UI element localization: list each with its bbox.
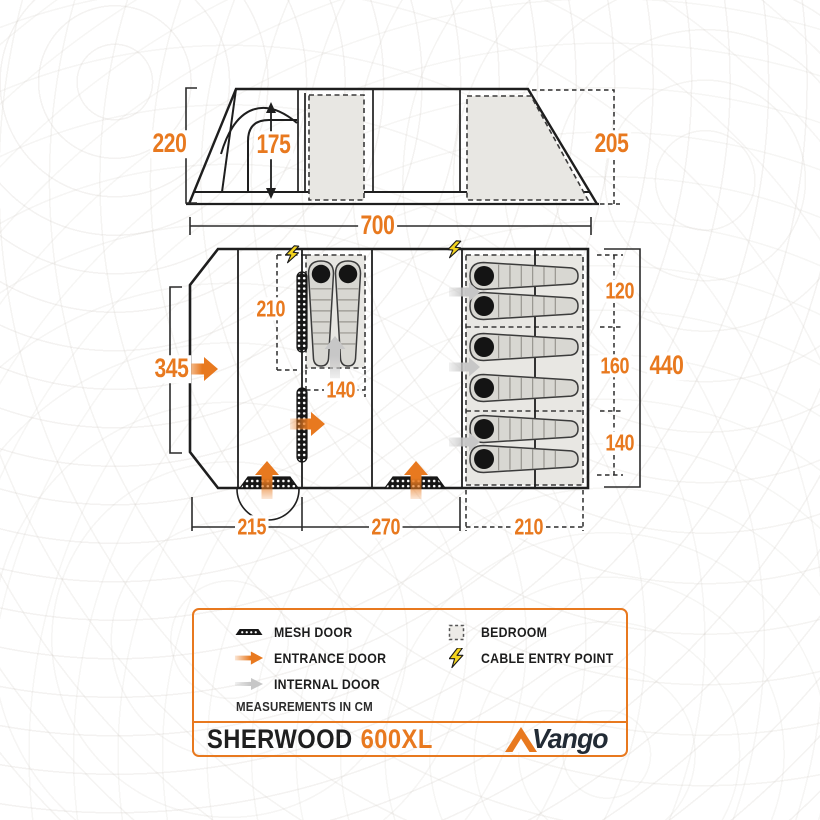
model-series: SHERWOOD [207, 724, 353, 754]
legend-label: ENTRANCE DOOR [274, 650, 386, 666]
mesh-door-icon [234, 626, 264, 638]
model-variant: 600XL [361, 724, 433, 754]
mesh-door-vertical-top [297, 272, 307, 352]
legend-label: BEDROOM [481, 624, 547, 640]
dim-right-total: 440 [647, 352, 686, 380]
legend-item-bedroom: BEDROOM [441, 619, 632, 645]
bottom-dim-lines [192, 497, 460, 531]
legend-item-entrance-door: ENTRANCE DOOR [234, 645, 402, 671]
dim-bottom-living: 270 [369, 515, 402, 538]
lightning-bolt-icon [447, 240, 461, 259]
legend-item-mesh-door: MESH DOOR [234, 619, 402, 645]
dim-right-top: 120 [603, 279, 636, 302]
dim-elev-right: 205 [592, 130, 631, 158]
dim-right-middle: 160 [598, 354, 631, 377]
legend-box: MESH DOOR ENTRANCE DOOR INTERNAL DOOR BE… [192, 608, 628, 757]
floorplan-view [183, 240, 588, 520]
dim-bottom-porch: 215 [235, 515, 268, 538]
internal-door-arrow-icon [234, 677, 264, 691]
bedroom-dashed-square-icon [441, 624, 471, 641]
elevation-bedroom-right [467, 96, 588, 200]
dim-front-width: 345 [152, 355, 191, 383]
entrance-door-arrow-icon [234, 650, 264, 666]
dim-bedroom-left-depth: 210 [254, 297, 287, 320]
dim-right-bottom: 140 [603, 431, 636, 454]
elevation-view [186, 89, 599, 204]
dim-elev-inner: 175 [254, 131, 293, 159]
legend-item-internal-door: INTERNAL DOOR [234, 671, 402, 697]
sleeping-bag [309, 261, 334, 366]
tent-diagram-page: 220 175 205 700 345 210 140 215 270 210 … [0, 0, 820, 820]
lightning-bolt-icon [441, 648, 471, 668]
title-bar: SHERWOOD600XL Vango [194, 721, 626, 755]
dim-total-width: 700 [358, 212, 397, 240]
model-name: SHERWOOD600XL [207, 724, 433, 755]
elevation-bedroom-left [309, 95, 364, 200]
dim-bottom-bedroom: 210 [512, 515, 545, 538]
dim-bedroom-left-width: 140 [324, 378, 357, 401]
dim-elev-left: 220 [150, 130, 189, 158]
legend-item-cable-entry: CABLE ENTRY POINT [441, 645, 632, 671]
brand-name: Vango [532, 723, 608, 755]
measurements-note: MEASUREMENTS IN CM [236, 700, 373, 714]
legend-label: MESH DOOR [274, 624, 352, 640]
brand-logo: Vango [503, 723, 612, 755]
legend-label: INTERNAL DOOR [274, 676, 380, 692]
legend-label: CABLE ENTRY POINT [481, 650, 613, 666]
